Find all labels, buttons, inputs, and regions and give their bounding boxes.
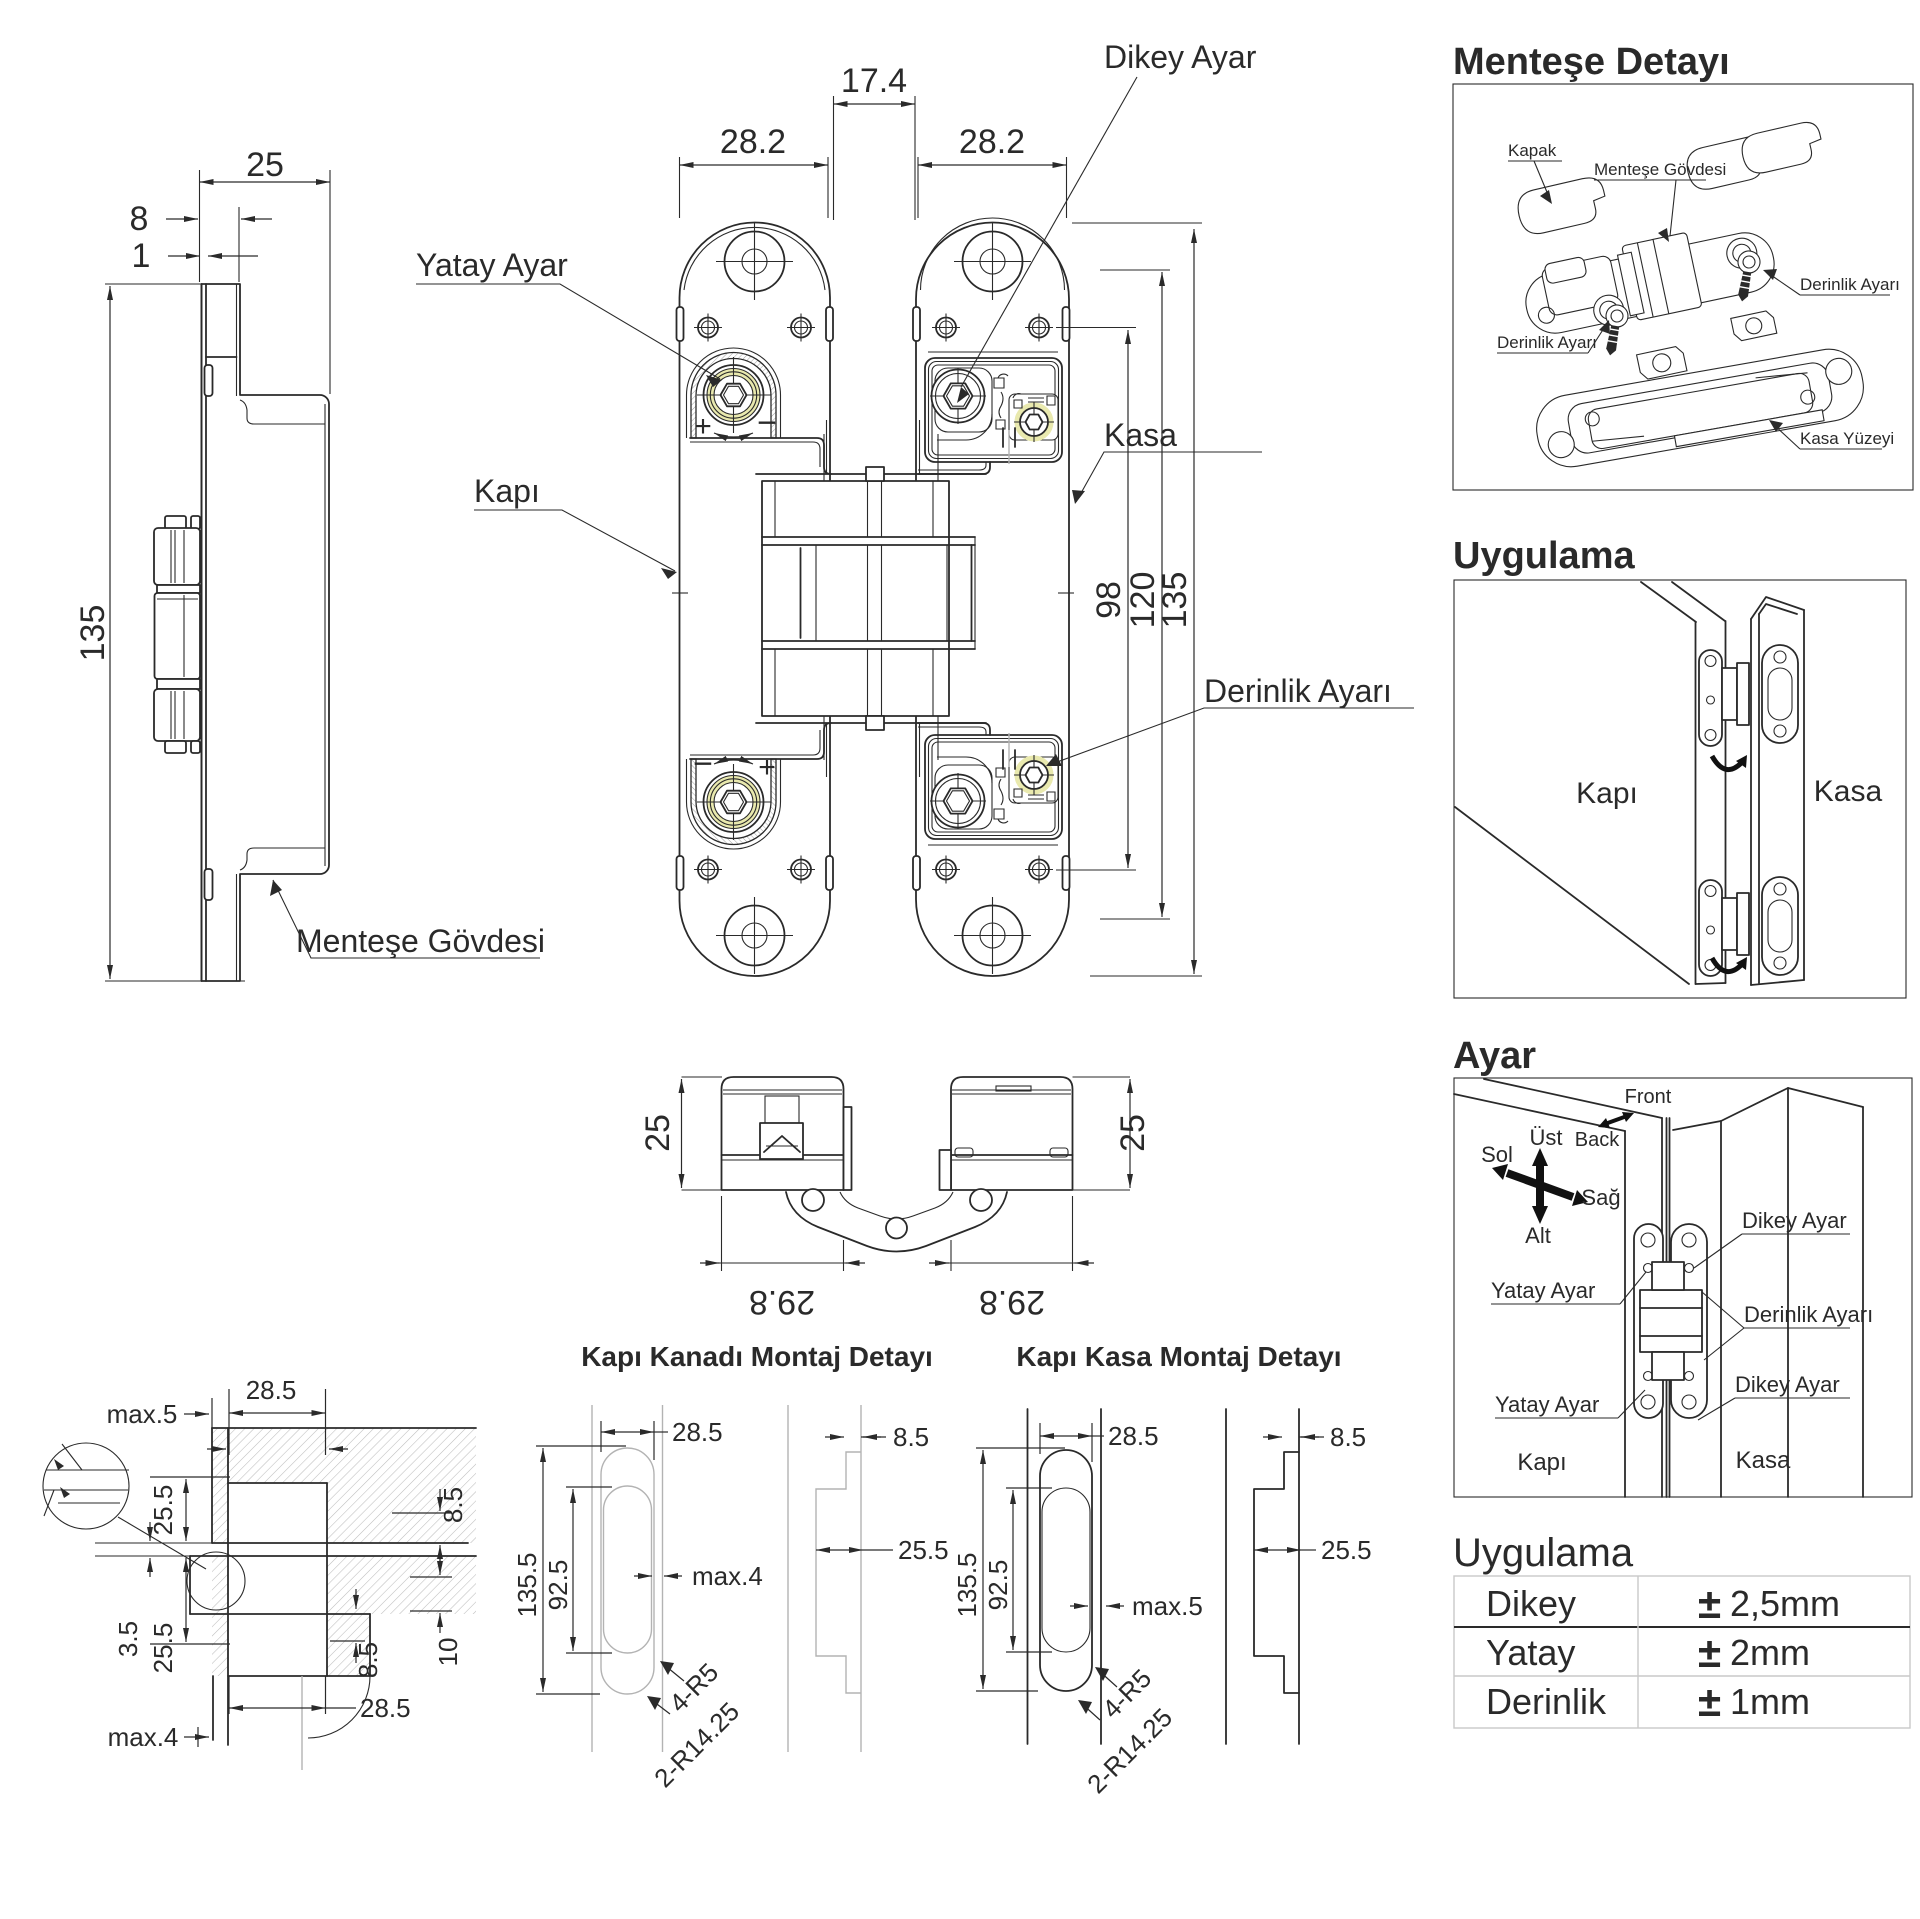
- svg-text:Derinlik: Derinlik: [1486, 1681, 1607, 1722]
- svg-text:28.5: 28.5: [1108, 1421, 1159, 1451]
- svg-text:25.5: 25.5: [148, 1623, 178, 1674]
- svg-text:8.5: 8.5: [353, 1642, 383, 1678]
- svg-text:Dikey Ayar: Dikey Ayar: [1735, 1372, 1840, 1397]
- svg-text:25: 25: [246, 146, 284, 184]
- svg-text:92.5: 92.5: [543, 1560, 573, 1611]
- svg-text:1: 1: [132, 237, 151, 275]
- svg-text:±: ±: [1698, 1678, 1721, 1725]
- svg-text:Menteşe Gövdesi: Menteşe Gövdesi: [296, 923, 545, 959]
- svg-text:8.5: 8.5: [438, 1487, 468, 1523]
- svg-text:Kapı: Kapı: [1517, 1449, 1566, 1476]
- svg-text:1mm: 1mm: [1730, 1681, 1810, 1722]
- svg-text:Menteşe Gövdesi: Menteşe Gövdesi: [1594, 160, 1726, 179]
- svg-text:max.4: max.4: [108, 1722, 179, 1752]
- svg-text:25: 25: [639, 1114, 677, 1152]
- svg-text:Dikey Ayar: Dikey Ayar: [1742, 1208, 1847, 1233]
- svg-text:Yatay Ayar: Yatay Ayar: [1491, 1278, 1595, 1303]
- svg-text:Kapı Kasa Montaj Detayı: Kapı Kasa Montaj Detayı: [1016, 1341, 1341, 1372]
- svg-text:Yatay Ayar: Yatay Ayar: [416, 247, 568, 283]
- svg-text:135.5: 135.5: [952, 1552, 982, 1617]
- svg-text:Yatay: Yatay: [1486, 1632, 1575, 1673]
- svg-text:3.5: 3.5: [113, 1621, 143, 1657]
- svg-text:2,5mm: 2,5mm: [1730, 1583, 1840, 1624]
- svg-text:Menteşe Detayı: Menteşe Detayı: [1453, 41, 1730, 83]
- svg-text:Kapı: Kapı: [474, 473, 540, 509]
- svg-text:2mm: 2mm: [1730, 1632, 1810, 1673]
- svg-text:max.5: max.5: [1132, 1591, 1203, 1621]
- svg-text:98: 98: [1090, 581, 1128, 619]
- svg-text:Kasa: Kasa: [1814, 775, 1883, 808]
- svg-text:Alt: Alt: [1525, 1223, 1551, 1248]
- svg-text:Kasa: Kasa: [1736, 1447, 1791, 1474]
- svg-text:Üst: Üst: [1530, 1125, 1563, 1150]
- svg-text:25.5: 25.5: [148, 1485, 178, 1536]
- svg-text:±: ±: [1698, 1629, 1721, 1676]
- svg-text:±: ±: [1698, 1580, 1721, 1627]
- svg-text:25.5: 25.5: [1321, 1535, 1372, 1565]
- svg-text:135: 135: [74, 605, 112, 662]
- svg-text:Sağ: Sağ: [1581, 1185, 1620, 1210]
- svg-text:28.5: 28.5: [246, 1375, 297, 1405]
- svg-text:17.4: 17.4: [841, 62, 907, 100]
- svg-text:Dikey Ayar: Dikey Ayar: [1104, 39, 1257, 75]
- svg-text:28.5: 28.5: [672, 1417, 723, 1447]
- svg-text:Kasa Yüzeyi: Kasa Yüzeyi: [1800, 429, 1894, 448]
- svg-text:28.5: 28.5: [360, 1693, 411, 1723]
- svg-text:Kapı: Kapı: [1576, 777, 1638, 810]
- svg-text:25: 25: [1114, 1114, 1152, 1152]
- svg-text:Back: Back: [1575, 1129, 1620, 1151]
- svg-text:+: +: [694, 410, 712, 443]
- svg-text:Derinlik Ayarı: Derinlik Ayarı: [1744, 1302, 1873, 1327]
- svg-text:Derinlik Ayarı: Derinlik Ayarı: [1204, 673, 1392, 709]
- svg-text:92.5: 92.5: [983, 1560, 1013, 1611]
- svg-text:8.5: 8.5: [893, 1422, 929, 1452]
- svg-text:−: −: [757, 404, 777, 442]
- svg-text:8: 8: [130, 200, 149, 238]
- svg-text:Yatay Ayar: Yatay Ayar: [1495, 1392, 1599, 1417]
- svg-text:Kapı Kanadı Montaj Detayı: Kapı Kanadı Montaj Detayı: [581, 1341, 933, 1372]
- svg-text:Front: Front: [1625, 1086, 1672, 1108]
- svg-text:Kapak: Kapak: [1508, 141, 1557, 160]
- svg-text:29.8: 29.8: [979, 1283, 1045, 1321]
- svg-text:Derinlik Ayarı: Derinlik Ayarı: [1497, 333, 1597, 352]
- svg-text:120: 120: [1124, 572, 1162, 629]
- svg-text:Derinlik Ayarı: Derinlik Ayarı: [1800, 275, 1900, 294]
- svg-text:Dikey: Dikey: [1486, 1583, 1576, 1624]
- svg-text:8.5: 8.5: [1330, 1422, 1366, 1452]
- svg-text:28.2: 28.2: [720, 123, 786, 161]
- svg-text:+: +: [758, 751, 776, 784]
- svg-text:Uygulama: Uygulama: [1453, 1531, 1634, 1575]
- svg-text:Uygulama: Uygulama: [1453, 535, 1635, 577]
- svg-text:Sol: Sol: [1481, 1142, 1513, 1167]
- svg-text:25.5: 25.5: [898, 1535, 949, 1565]
- svg-text:135.5: 135.5: [512, 1552, 542, 1617]
- svg-text:−: −: [693, 745, 713, 783]
- svg-text:10: 10: [433, 1638, 463, 1667]
- svg-text:29.8: 29.8: [749, 1283, 815, 1321]
- svg-text:max.5: max.5: [107, 1399, 178, 1429]
- svg-text:28.2: 28.2: [959, 123, 1025, 161]
- svg-text:Ayar: Ayar: [1453, 1035, 1536, 1077]
- svg-text:Kasa: Kasa: [1104, 417, 1177, 453]
- svg-text:max.4: max.4: [692, 1561, 763, 1591]
